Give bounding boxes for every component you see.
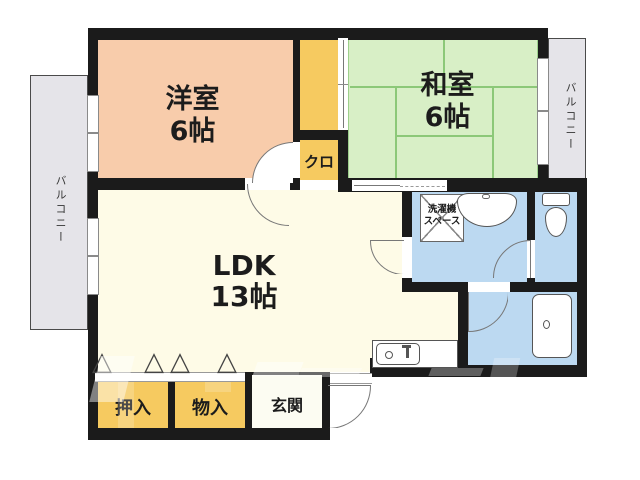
wall-bottom-left <box>88 428 330 440</box>
ldk-label: LDK 13帖 <box>158 250 330 312</box>
sliding-door-rail-dashed <box>400 186 445 187</box>
japanese-room-name: 和室 <box>421 70 475 101</box>
kuro-label: クロ <box>297 151 341 172</box>
washbasin-faucet-icon <box>482 194 490 199</box>
ldk-name: LDK <box>213 249 276 282</box>
japanese-room-size: 6帖 <box>425 102 471 133</box>
door-arc-toilet <box>493 240 531 278</box>
doorway-bathroom <box>468 282 510 292</box>
door-arc-bathroom <box>468 292 508 332</box>
floor-plan: バルコニー バルコニー <box>0 0 640 480</box>
bathtub-drain <box>543 320 550 329</box>
wall-top <box>88 28 548 40</box>
wardrobe-upper <box>300 38 338 130</box>
kitchen-sink <box>376 343 420 365</box>
sink-faucet-icon <box>406 347 409 358</box>
door-arc-entrance <box>328 385 371 428</box>
sink-drain <box>385 351 393 359</box>
folding-door-icon: △ <box>217 349 237 375</box>
watermark <box>298 368 362 377</box>
toilet-tank <box>542 193 570 206</box>
door-arc-kuro <box>252 142 293 183</box>
folding-door-icon: △ <box>170 349 190 375</box>
door-arc-western <box>247 184 289 226</box>
wall-right-outer <box>577 182 587 377</box>
laundry-label-line2: スペース <box>424 216 461 227</box>
western-room-label: 洋室 6帖 <box>110 84 275 148</box>
western-room-size: 6帖 <box>170 116 216 147</box>
watermark <box>428 368 483 376</box>
window-sash <box>537 110 549 112</box>
balcony-right-label: バルコニー <box>556 62 578 172</box>
folding-door-icon: △ <box>144 349 164 375</box>
sliding-door-rail <box>354 185 400 186</box>
wall-toilet-bottom <box>510 282 587 292</box>
genkan-label: 玄関 <box>252 392 322 416</box>
monoire-label: 物入 <box>175 394 245 420</box>
wall-genkan-left <box>245 372 252 440</box>
japanese-room-label: 和室 6帖 <box>365 70 530 134</box>
watermark <box>205 382 231 392</box>
wall-closet-divider <box>168 372 175 440</box>
wall-bathroom-left <box>458 292 468 375</box>
watermark <box>252 362 303 376</box>
wall-washroom-bottom-left <box>402 282 468 292</box>
window-sash <box>87 255 99 257</box>
laundry-label-line1: 洗濯機 <box>428 204 457 215</box>
watermark <box>118 382 134 428</box>
sink-faucet-icon <box>402 345 411 348</box>
window-sash <box>87 132 99 134</box>
tatami-line <box>395 135 492 137</box>
ldk-size: 13帖 <box>211 280 278 313</box>
door-arc-washroom <box>370 240 404 274</box>
western-room-name: 洋室 <box>166 84 220 115</box>
balcony-left-label: バルコニー <box>46 150 68 270</box>
wall-wardrobe-left <box>293 28 300 142</box>
sliding-door-tick <box>338 84 348 85</box>
bathtub <box>532 294 572 358</box>
